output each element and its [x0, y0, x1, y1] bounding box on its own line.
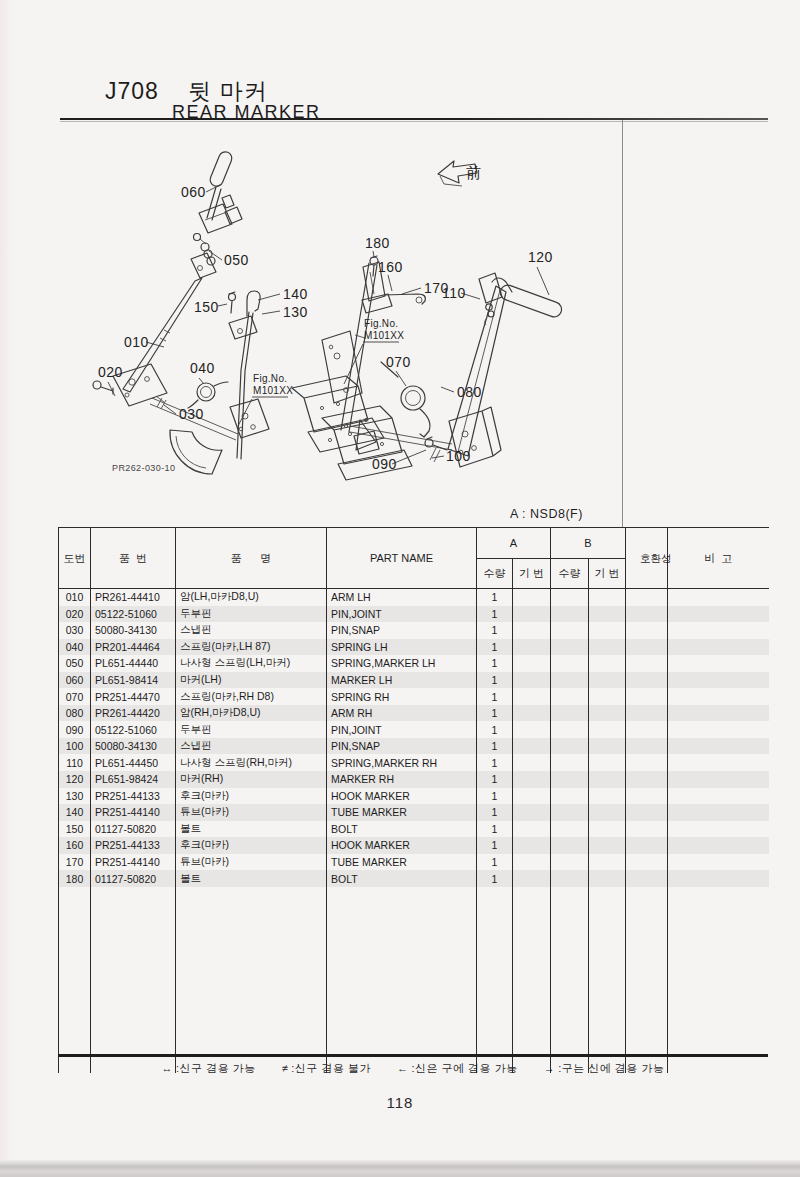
- col-header-remarks: 비 고: [668, 528, 769, 589]
- cell-name_ko: 나사형 스프링(RH,마커): [176, 754, 327, 771]
- table-row: 18001127-50820볼트BOLT1: [59, 870, 769, 887]
- cell-remarks: [668, 622, 769, 639]
- cell-name_ko: 스프링(마카,LH 87): [176, 639, 327, 656]
- left-marker-rod: [237, 312, 253, 459]
- table-row: 03050080-34130스냅핀PIN,SNAP1: [59, 622, 769, 639]
- cell-ref: 140: [59, 804, 91, 821]
- cell-remarks: [668, 589, 769, 606]
- empty-cell: [668, 887, 769, 1073]
- cell-qty_a: 1: [477, 606, 513, 623]
- cell-remarks: [668, 721, 769, 738]
- cell-remarks: [668, 788, 769, 805]
- cell-compat: [626, 870, 668, 887]
- cell-ref: 180: [59, 870, 91, 887]
- right-marker-assembly: 前: [322, 161, 564, 480]
- diagram-label-180: 180: [365, 235, 390, 251]
- right-joint-pin: [425, 439, 433, 447]
- cell-part_no: PR251-44133: [91, 837, 176, 854]
- empty-cell: [59, 887, 91, 1073]
- cell-name_ko: 마커(LH): [176, 672, 327, 689]
- right-coil-spring: [401, 386, 425, 410]
- cell-part_name: PIN,JOINT: [327, 606, 477, 623]
- cell-compat: [626, 788, 668, 805]
- table-row: 120PL651-98424마커(RH)MARKER RH1: [59, 771, 769, 788]
- cell-ref: 020: [59, 606, 91, 623]
- drawing-number: PR262-030-10: [112, 463, 175, 473]
- cell-compat: [626, 589, 668, 606]
- table-row: 140PR251-44140튜브(마카)TUBE MARKER1: [59, 804, 769, 821]
- cell-compat: [626, 688, 668, 705]
- cell-ser_a: [513, 754, 551, 771]
- cell-qty_b: [551, 672, 589, 689]
- right-arrow-symbol: →: [544, 1062, 556, 1074]
- cell-name_ko: 스냅핀: [176, 622, 327, 639]
- cell-compat: [626, 754, 668, 771]
- col-header-qty-b: 수량: [551, 559, 589, 589]
- cell-ser_a: [513, 655, 551, 672]
- cell-part_no: PL651-98424: [91, 771, 176, 788]
- frame-vertical-line: [622, 120, 623, 527]
- cell-ser_a: [513, 738, 551, 755]
- table-row: 02005122-51060두부핀PIN,JOINT1: [59, 606, 769, 623]
- cell-ref: 150: [59, 821, 91, 838]
- left-marker-disc: [170, 430, 222, 474]
- cell-part_name: PIN,SNAP: [327, 622, 477, 639]
- cell-ref: 050: [59, 655, 91, 672]
- cell-name_ko: 후크(마카): [176, 837, 327, 854]
- scan-edge-bottom: [0, 1160, 800, 1177]
- cell-qty_a: 1: [477, 754, 513, 771]
- cell-qty_b: [551, 754, 589, 771]
- cell-qty_a: 1: [477, 639, 513, 656]
- interchange-legend: ↔:신구 겸용 가능 ≠:신구 겸용 불가 ←:신은 구에 겸용 가능 →:구는…: [58, 1061, 768, 1076]
- table-row: 070PR251-44470스프링(마카,RH D8)SPRING RH1: [59, 688, 769, 705]
- cell-qty_b: [551, 705, 589, 722]
- legend-item-label: :신구 겸용 불가: [291, 1062, 371, 1074]
- cell-part_no: 01127-50820: [91, 870, 176, 887]
- cell-remarks: [668, 837, 769, 854]
- diagram-label-100: 100: [446, 448, 471, 464]
- legend-item-label: :신은 구에 겸용 가능: [411, 1062, 517, 1074]
- callout-labels: 060 050 150 140 130 010 020 040 030 180 …: [98, 184, 553, 473]
- cell-ser_a: [513, 804, 551, 821]
- cell-qty_b: [551, 821, 589, 838]
- cell-qty_b: [551, 721, 589, 738]
- cell-remarks: [668, 870, 769, 887]
- cell-part_name: SPRING,MARKER LH: [327, 655, 477, 672]
- fig-ref-left-line1: Fig.No.: [253, 373, 287, 384]
- table-header-row-1: 도번 품 번 품 명 PART NAME A B 호환성 비 고: [59, 528, 769, 559]
- cell-qty_a: 1: [477, 854, 513, 871]
- col-header-name-ko: 품 명: [176, 528, 327, 589]
- cell-part_no: PR251-44140: [91, 804, 176, 821]
- cell-part_name: MARKER RH: [327, 771, 477, 788]
- cell-ref: 110: [59, 754, 91, 771]
- left-arm: [123, 278, 202, 392]
- left-arrow-symbol: ←: [397, 1062, 409, 1074]
- cell-compat: [626, 738, 668, 755]
- table-row: 160PR251-44133후크(마카)HOOK MARKER1: [59, 837, 769, 854]
- cell-ref: 090: [59, 721, 91, 738]
- cell-qty_b: [551, 771, 589, 788]
- cell-ser_b: [589, 837, 626, 854]
- cell-part_no: 05122-51060: [91, 721, 176, 738]
- cell-part_no: PR261-44420: [91, 705, 176, 722]
- cell-part_no: 50080-34130: [91, 738, 176, 755]
- cell-name_ko: 튜브(마카): [176, 854, 327, 871]
- cell-qty_b: [551, 837, 589, 854]
- cell-ser_a: [513, 721, 551, 738]
- cell-part_name: HOOK MARKER: [327, 837, 477, 854]
- cell-qty_a: 1: [477, 821, 513, 838]
- cell-name_ko: 마커(RH): [176, 771, 327, 788]
- legend-item-label: :신구 겸용 가능: [176, 1062, 256, 1074]
- cell-part_no: PR261-44410: [91, 589, 176, 606]
- cell-ref: 120: [59, 771, 91, 788]
- header-rule: [60, 118, 768, 120]
- left-hook: [247, 291, 260, 316]
- cell-ref: 070: [59, 688, 91, 705]
- cell-ser_b: [589, 870, 626, 887]
- cell-ser_a: [513, 688, 551, 705]
- cell-qty_a: 1: [477, 622, 513, 639]
- empty-cell: [626, 887, 668, 1073]
- col-header-compat: 호환성: [626, 528, 668, 589]
- variant-note: A : NSD8(F): [510, 507, 583, 521]
- cell-compat: [626, 821, 668, 838]
- cell-qty_a: 1: [477, 804, 513, 821]
- cell-qty_b: [551, 606, 589, 623]
- cell-ref: 160: [59, 837, 91, 854]
- cell-part_name: HOOK MARKER: [327, 788, 477, 805]
- table-row: 15001127-50820볼트BOLT1: [59, 821, 769, 838]
- scan-edge-left: [0, 0, 16, 1177]
- not-equal-symbol: ≠: [282, 1062, 289, 1074]
- cell-remarks: [668, 821, 769, 838]
- table-row: 050PL651-44440나사형 스프링(LH,마커)SPRING,MARKE…: [59, 655, 769, 672]
- left-joint-pin: [93, 381, 101, 389]
- right-marker-arm: [448, 286, 506, 456]
- cell-part_name: SPRING RH: [327, 688, 477, 705]
- cell-qty_b: [551, 655, 589, 672]
- cell-part_no: 01127-50820: [91, 821, 176, 838]
- cell-remarks: [668, 771, 769, 788]
- cell-qty_a: 1: [477, 738, 513, 755]
- table-row: 110PL651-44450나사형 스프링(RH,마커)SPRING,MARKE…: [59, 754, 769, 771]
- cell-qty_b: [551, 639, 589, 656]
- header-rule-shadow: [60, 121, 768, 122]
- diagram-label-030: 030: [179, 406, 204, 422]
- cell-qty_a: 1: [477, 688, 513, 705]
- leader-lines: [108, 185, 549, 464]
- cell-part_name: BOLT: [327, 821, 477, 838]
- cell-name_ko: 두부핀: [176, 606, 327, 623]
- cell-qty_a: 1: [477, 870, 513, 887]
- cell-part_name: ARM LH: [327, 589, 477, 606]
- cell-qty_a: 1: [477, 771, 513, 788]
- cell-ser_b: [589, 788, 626, 805]
- cell-remarks: [668, 688, 769, 705]
- legend-item-label: :구는 신에 겸용 가능: [558, 1062, 664, 1074]
- empty-cell: [176, 887, 327, 1073]
- diagram-label-150: 150: [194, 299, 219, 315]
- cell-part_name: PIN,JOINT: [327, 721, 477, 738]
- empty-cell: [91, 887, 176, 1073]
- cell-ser_a: [513, 771, 551, 788]
- cell-part_no: PR201-44464: [91, 639, 176, 656]
- cell-ser_b: [589, 589, 626, 606]
- cell-name_ko: 두부핀: [176, 721, 327, 738]
- cell-remarks: [668, 754, 769, 771]
- cell-qty_a: 1: [477, 705, 513, 722]
- cell-qty_a: 1: [477, 837, 513, 854]
- cell-part_name: MARKER LH: [327, 672, 477, 689]
- front-direction-label: 前: [466, 164, 481, 181]
- cell-qty_a: 1: [477, 721, 513, 738]
- cell-qty_a: 1: [477, 589, 513, 606]
- compat-vertical-text: 호환성: [640, 552, 653, 564]
- col-header-serial-b: 기 번: [589, 559, 626, 589]
- cell-qty_b: [551, 870, 589, 887]
- cell-compat: [626, 804, 668, 821]
- diagram-label-170: 170: [424, 280, 449, 296]
- diagram-label-110: 110: [442, 285, 466, 301]
- cell-part_name: TUBE MARKER: [327, 804, 477, 821]
- diagram-label-060: 060: [181, 184, 206, 200]
- table-row: 080PR261-44420암(RH,마카D8,U)ARM RH1: [59, 705, 769, 722]
- cell-ser_b: [589, 705, 626, 722]
- cell-ref: 030: [59, 622, 91, 639]
- cell-name_ko: 암(LH,마카D8,U): [176, 589, 327, 606]
- cell-qty_a: 1: [477, 655, 513, 672]
- diagram-label-020: 020: [98, 364, 123, 380]
- empty-filler-row: [59, 887, 769, 1073]
- cell-part_name: TUBE MARKER: [327, 854, 477, 871]
- cell-ser_a: [513, 854, 551, 871]
- cell-ser_b: [589, 771, 626, 788]
- cell-ser_a: [513, 837, 551, 854]
- left-handle-grip: [208, 150, 234, 188]
- diagram-label-070: 070: [386, 354, 411, 370]
- cell-ref: 170: [59, 854, 91, 871]
- cell-name_ko: 나사형 스프링(LH,마커): [176, 655, 327, 672]
- empty-cell: [589, 887, 626, 1073]
- section-code: J708: [105, 78, 159, 105]
- col-header-part-no: 품 번: [91, 528, 176, 589]
- cell-part_no: PL651-44450: [91, 754, 176, 771]
- diagram-label-040: 040: [190, 360, 215, 376]
- legend-item: ↔:신구 겸용 가능: [162, 1061, 256, 1076]
- parts-table-body: 010PR261-44410암(LH,마카D8,U)ARM LH10200512…: [59, 589, 769, 1073]
- cell-compat: [626, 854, 668, 871]
- cell-ref: 130: [59, 788, 91, 805]
- legend-item: →:구는 신에 겸용 가능: [544, 1061, 665, 1076]
- cell-ser_b: [589, 606, 626, 623]
- empty-cell: [513, 887, 551, 1073]
- cell-ser_b: [589, 622, 626, 639]
- col-header-group-b: B: [551, 528, 626, 559]
- diagram-label-050: 050: [224, 252, 249, 268]
- cell-remarks: [668, 655, 769, 672]
- cell-part_name: SPRING,MARKER RH: [327, 754, 477, 771]
- diagram-label-160: 160: [378, 259, 403, 275]
- cell-remarks: [668, 854, 769, 871]
- cell-ref: 010: [59, 589, 91, 606]
- cell-ser_a: [513, 788, 551, 805]
- col-header-ref-no: 도번: [59, 528, 91, 589]
- cell-ser_a: [513, 870, 551, 887]
- legend-item: ←:신은 구에 겸용 가능: [397, 1061, 518, 1076]
- empty-cell: [327, 887, 477, 1073]
- cell-ser_a: [513, 606, 551, 623]
- cell-ref: 100: [59, 738, 91, 755]
- cell-remarks: [668, 705, 769, 722]
- cell-qty_b: [551, 688, 589, 705]
- legend-item: ≠:신구 겸용 불가: [282, 1061, 371, 1076]
- cell-part_name: PIN,SNAP: [327, 738, 477, 755]
- cell-qty_b: [551, 854, 589, 871]
- table-row: 130PR251-44133후크(마카)HOOK MARKER1: [59, 788, 769, 805]
- cell-qty_a: 1: [477, 672, 513, 689]
- cell-compat: [626, 837, 668, 854]
- diagram-label-010: 010: [124, 334, 149, 350]
- fig-ref-right-line2: M101XX: [364, 330, 404, 341]
- cell-ser_b: [589, 721, 626, 738]
- table-row: 060PL651-98414마커(LH)MARKER LH1: [59, 672, 769, 689]
- right-tube-rod: [384, 294, 425, 304]
- cell-name_ko: 후크(마카): [176, 788, 327, 805]
- diagram-label-140: 140: [283, 286, 308, 302]
- table-row: 170PR251-44140튜브(마카)TUBE MARKER1: [59, 854, 769, 871]
- cell-ser_a: [513, 639, 551, 656]
- cell-ref: 080: [59, 705, 91, 722]
- right-bolt-180: [370, 257, 378, 265]
- cell-compat: [626, 672, 668, 689]
- page-title-korean: 뒷 마커: [188, 78, 267, 104]
- cell-name_ko: 튜브(마카): [176, 804, 327, 821]
- cell-part_no: PL651-44440: [91, 655, 176, 672]
- table-row: 10050080-34130스냅핀PIN,SNAP1: [59, 738, 769, 755]
- cell-qty_a: 1: [477, 788, 513, 805]
- cell-compat: [626, 606, 668, 623]
- cell-remarks: [668, 606, 769, 623]
- cell-ser_b: [589, 854, 626, 871]
- cell-ser_a: [513, 622, 551, 639]
- cell-part_no: 05122-51060: [91, 606, 176, 623]
- col-header-qty-a: 수량: [477, 559, 513, 589]
- cell-compat: [626, 721, 668, 738]
- cell-qty_b: [551, 738, 589, 755]
- empty-cell: [551, 887, 589, 1073]
- page-number: 118: [0, 1094, 800, 1111]
- front-direction-arrow: [438, 161, 477, 183]
- table-row: 09005122-51060두부핀PIN,JOINT1: [59, 721, 769, 738]
- cell-ser_b: [589, 672, 626, 689]
- diagram-label-130: 130: [283, 304, 308, 320]
- col-header-group-a: A: [477, 528, 551, 559]
- fig-ref-left-line2: M101XX: [253, 385, 293, 396]
- cell-part_no: PR251-44470: [91, 688, 176, 705]
- cell-ser_a: [513, 705, 551, 722]
- cell-ser_b: [589, 754, 626, 771]
- table-bottom-rule: [58, 1054, 768, 1057]
- cell-ser_a: [513, 821, 551, 838]
- cell-ser_a: [513, 672, 551, 689]
- diagram-label-080: 080: [457, 384, 482, 400]
- cell-compat: [626, 705, 668, 722]
- cell-qty_b: [551, 589, 589, 606]
- left-marker-assembly: [93, 150, 384, 474]
- cell-remarks: [668, 804, 769, 821]
- cell-ser_b: [589, 639, 626, 656]
- cell-part_name: SPRING LH: [327, 639, 477, 656]
- table-row: 010PR261-44410암(LH,마카D8,U)ARM LH1: [59, 589, 769, 606]
- cell-name_ko: 암(RH,마카D8,U): [176, 705, 327, 722]
- parts-table: 도번 품 번 품 명 PART NAME A B 호환성 비 고 수량 기 번 …: [58, 527, 769, 1073]
- cell-ref: 040: [59, 639, 91, 656]
- cell-remarks: [668, 672, 769, 689]
- col-header-serial-a: 기 번: [513, 559, 551, 589]
- cell-qty_b: [551, 622, 589, 639]
- cell-ser_b: [589, 688, 626, 705]
- cell-name_ko: 볼트: [176, 821, 327, 838]
- table-row: 040PR201-44464스프링(마카,LH 87)SPRING LH1: [59, 639, 769, 656]
- cell-name_ko: 스프링(마카,RH D8): [176, 688, 327, 705]
- cell-part_name: BOLT: [327, 870, 477, 887]
- cell-part_no: PR251-44133: [91, 788, 176, 805]
- cell-compat: [626, 655, 668, 672]
- cell-part_no: PR251-44140: [91, 854, 176, 871]
- cell-ser_b: [589, 821, 626, 838]
- empty-cell: [477, 887, 513, 1073]
- diagram-label-120: 120: [528, 249, 553, 265]
- col-header-part-name: PART NAME: [327, 528, 477, 589]
- cell-ref: 060: [59, 672, 91, 689]
- cell-name_ko: 스냅핀: [176, 738, 327, 755]
- cell-part_no: PL651-98414: [91, 672, 176, 689]
- cell-remarks: [668, 738, 769, 755]
- right-handle-grip: [498, 283, 563, 319]
- cell-ser_a: [513, 589, 551, 606]
- cell-qty_b: [551, 804, 589, 821]
- cell-qty_b: [551, 788, 589, 805]
- cell-remarks: [668, 639, 769, 656]
- cell-ser_b: [589, 738, 626, 755]
- left-coil-spring: [197, 383, 215, 401]
- cell-part_name: ARM RH: [327, 705, 477, 722]
- cell-compat: [626, 639, 668, 656]
- cell-compat: [626, 771, 668, 788]
- cell-ser_b: [589, 655, 626, 672]
- cell-part_no: 50080-34130: [91, 622, 176, 639]
- both-arrow-symbol: ↔: [162, 1062, 174, 1074]
- cell-ser_b: [589, 804, 626, 821]
- cell-compat: [626, 622, 668, 639]
- cell-name_ko: 볼트: [176, 870, 327, 887]
- fig-ref-right-line1: Fig.No.: [364, 318, 398, 329]
- diagram-label-090: 090: [372, 456, 397, 472]
